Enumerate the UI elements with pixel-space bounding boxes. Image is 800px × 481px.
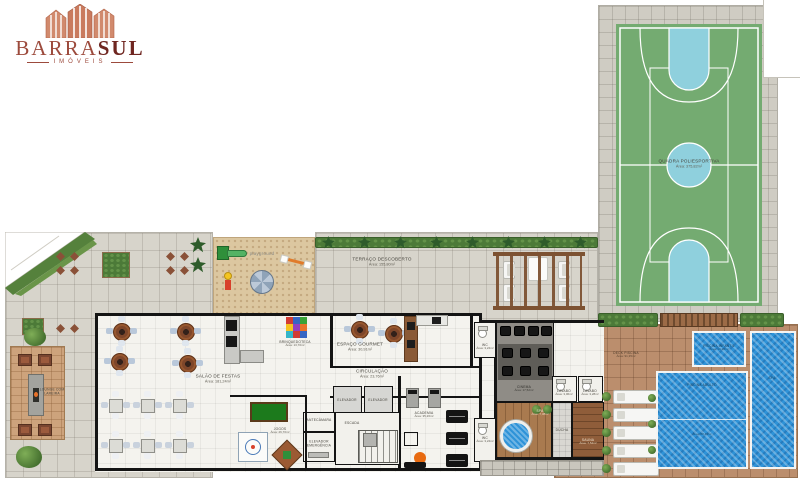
- cinema-seat: [514, 326, 525, 336]
- planter-hedge: [740, 313, 784, 327]
- logo-brand-secondary: SUL: [98, 36, 145, 60]
- label-antecamara: ANTECÂMARA: [307, 418, 332, 422]
- treadmill: [406, 388, 419, 408]
- playground-carousel: [250, 270, 274, 294]
- lounge-armchair: [38, 424, 52, 436]
- label-cinema: CINEMAÁrea: 17,52m²: [514, 385, 533, 393]
- square-table: [100, 390, 130, 420]
- sauna-room: [572, 402, 604, 458]
- logo-subtitle: IMÓVEIS: [53, 59, 106, 65]
- play-mat: [293, 331, 300, 338]
- round-table: [174, 350, 200, 376]
- label-deck-piscina: DECK PISCINAÁrea: 91,35m²: [613, 351, 639, 359]
- sun-lounger: [613, 462, 659, 476]
- cinema-seat: [538, 348, 549, 358]
- label-jogos: JOGOSÁrea: 26,70m²: [270, 427, 289, 435]
- toilet-icon: [478, 423, 486, 434]
- lounge-armchair: [18, 424, 32, 436]
- site-notch: [763, 0, 800, 78]
- weight-rack: [404, 462, 426, 468]
- deck-plant: [602, 428, 611, 437]
- gym-bench: [446, 454, 468, 467]
- label-quadra: QUADRA POLIESPORTIVAÁrea: 375,82m²: [658, 159, 719, 170]
- elevator-door: [308, 452, 329, 458]
- deck-plant: [602, 464, 611, 473]
- gym-bench: [446, 410, 468, 423]
- deck-plant: [602, 446, 611, 455]
- grill: [407, 340, 415, 348]
- logo-rule-right: [111, 62, 133, 63]
- label-escada: ESCADA: [345, 421, 360, 425]
- gym-bench: [446, 432, 468, 445]
- bush: [16, 446, 42, 468]
- label-salao: SALÃO DE FESTASÁrea: 181,24m²: [196, 374, 241, 385]
- label-elevador-2: ELEVADOR: [368, 398, 387, 402]
- fridge: [226, 320, 237, 331]
- sun-lounger: [613, 426, 659, 440]
- cinema-seat: [502, 348, 513, 358]
- label-circulacao: CIRCULAÇÃOÁrea: 23,76m²: [356, 369, 388, 380]
- logo-buildings-icon: [42, 4, 118, 38]
- paving-below-annex: [480, 460, 604, 476]
- wall: [330, 366, 482, 368]
- square-table: [132, 430, 162, 460]
- playground-spring-base: [225, 280, 231, 290]
- square-table: [132, 390, 162, 420]
- label-piscina-infantil: PISCINA INFANTILÁrea: 10,20m²: [703, 344, 735, 352]
- round-table: [380, 320, 406, 346]
- play-mat: [293, 317, 300, 324]
- floor-plan-canvas: BARRASUL IMÓVEIS: [0, 0, 800, 481]
- lounge-armchair: [18, 354, 32, 366]
- logo-subtitle-row: IMÓVEIS: [10, 59, 150, 65]
- grill: [407, 322, 415, 330]
- pool-table: [250, 402, 288, 422]
- wall: [470, 313, 473, 368]
- gym-station: [404, 432, 418, 446]
- air-hockey-puck: [251, 445, 255, 449]
- label-terraco: TERRAÇO DESCOBERTOÁrea: 155,80m²: [352, 257, 411, 268]
- label-wc-inferior: WCÁrea: 3,24m²: [476, 436, 493, 444]
- cinema-seat: [541, 326, 552, 336]
- label-piscina-adulto: PISCINA ADULTO: [687, 383, 717, 387]
- cinema-seat: [538, 366, 549, 376]
- label-brinquedoteca: BRINQUEDOTECAÁrea: 13,70m²: [279, 340, 310, 348]
- play-mat: [300, 317, 307, 324]
- label-lounge: LOUNGE COM LAREIRA: [38, 388, 66, 397]
- label-ducha: DUCHA: [556, 428, 569, 432]
- play-mat: [293, 324, 300, 331]
- square-table: [164, 430, 194, 460]
- label-playground: playground: [250, 251, 275, 257]
- bush: [24, 328, 46, 346]
- wall: [95, 313, 98, 471]
- planter-hedge: [598, 313, 658, 327]
- logo-rule-left: [27, 62, 49, 63]
- treadmill: [428, 388, 441, 408]
- game-table-top: [283, 451, 291, 459]
- round-table: [108, 318, 134, 344]
- deck-plant: [602, 392, 611, 401]
- lap-pool: [750, 331, 796, 469]
- deck-plant: [648, 446, 656, 454]
- stair-landing: [363, 433, 377, 447]
- cinema-seat: [520, 366, 531, 376]
- play-mat: [286, 331, 293, 338]
- label-sauna: SAUNAÁrea: 7,54m²: [579, 438, 596, 446]
- corner-planter: [5, 232, 97, 296]
- kitchen-counter: [240, 350, 264, 363]
- label-piscina-spa: SPA: [769, 376, 776, 380]
- label-elevador-emergencia: ELEVADOR EMERGÊNCIA: [305, 440, 333, 449]
- label-spa: SPAÁrea: 7,38m²: [531, 409, 548, 417]
- planter-box: [102, 252, 130, 278]
- round-table: [172, 318, 198, 344]
- play-mat: [286, 317, 293, 324]
- label-lavabo-2: LAVABOÁrea: 3,28m²: [581, 389, 598, 397]
- playground-spring-toy: [224, 272, 232, 280]
- round-table: [106, 348, 132, 374]
- deck-plant: [648, 420, 656, 428]
- label-elevador-1: ELEVADOR: [337, 398, 356, 402]
- play-mat: [286, 324, 293, 331]
- cooktop: [432, 317, 441, 324]
- label-lavabo-1: LAVABOÁrea: 3,06m²: [555, 389, 572, 397]
- toilet-icon: [478, 326, 486, 337]
- label-piscina-adulto-area: Área: 58,43m²: [692, 433, 711, 437]
- cinema-seat: [520, 348, 531, 358]
- label-academia: ACADEMIAÁrea: 35,26m²: [414, 411, 433, 419]
- square-table: [164, 390, 194, 420]
- logo-brand-primary: BARRA: [15, 36, 97, 60]
- play-mat: [300, 324, 307, 331]
- label-wc-superior: WCÁrea: 3,24m²: [476, 343, 493, 351]
- logo-wordmark: BARRASUL: [10, 36, 150, 61]
- logo: BARRASUL IMÓVEIS: [10, 4, 150, 66]
- play-mat: [300, 331, 307, 338]
- jacuzzi: [500, 420, 532, 452]
- square-table: [100, 430, 130, 460]
- cinema-seat: [502, 366, 513, 376]
- round-table: [346, 316, 372, 342]
- hedge-row: [315, 237, 598, 248]
- cinema-seat: [528, 326, 539, 336]
- pergola: [496, 254, 582, 308]
- wall: [330, 313, 333, 368]
- pool-lane-line: [658, 419, 746, 420]
- stove: [226, 336, 237, 347]
- deck-plant: [602, 410, 611, 419]
- cinema-seat: [500, 326, 511, 336]
- bench-row: [660, 313, 738, 327]
- lounge-armchair: [38, 354, 52, 366]
- deck-plant: [648, 394, 656, 402]
- label-gourmet: ESPAÇO GOURMETÁrea: 30,91m²: [337, 342, 383, 353]
- playground-slide: [227, 250, 247, 257]
